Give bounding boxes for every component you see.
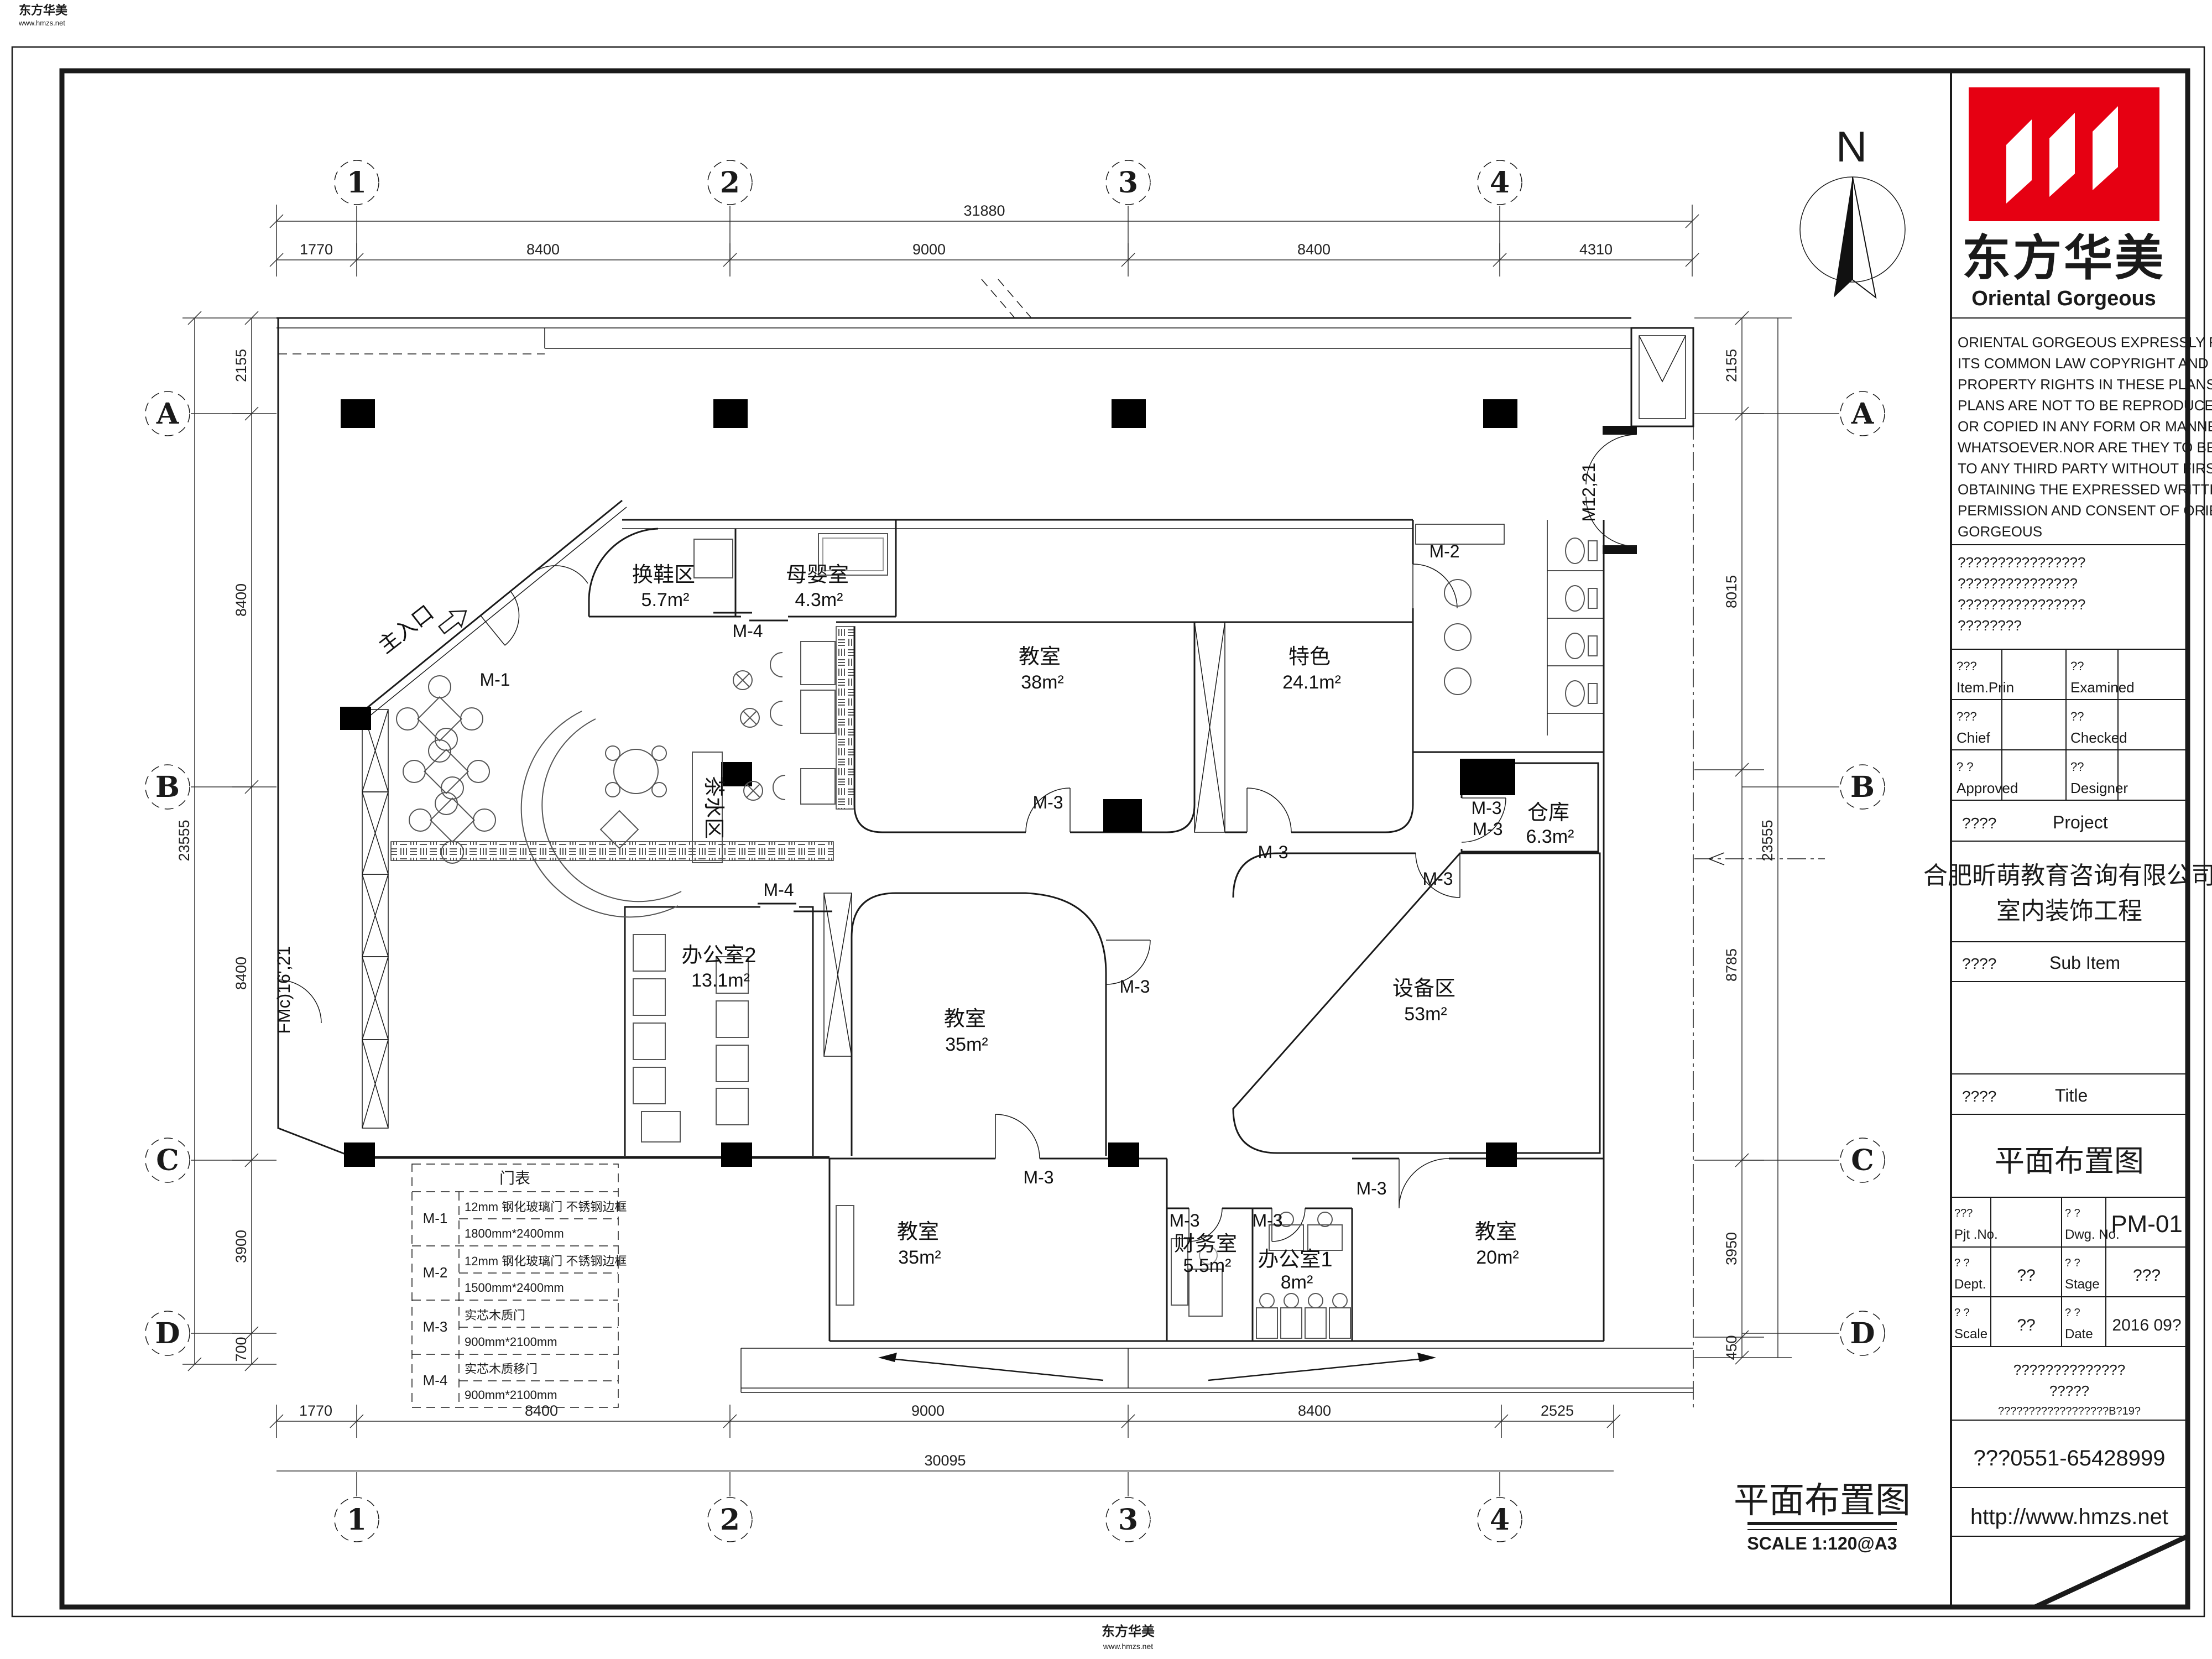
svg-text:5.5m²: 5.5m² xyxy=(1183,1255,1232,1276)
svg-text:??: ?? xyxy=(2070,659,2084,673)
svg-text:Project: Project xyxy=(2053,812,2108,832)
plan-caption-scale: SCALE 1:120@A3 xyxy=(1747,1533,1897,1553)
svg-text:??: ?? xyxy=(2070,760,2084,774)
svg-text:PLANS ARE NOT TO BE REPRODUCED: PLANS ARE NOT TO BE REPRODUCED CH xyxy=(1958,397,2212,414)
mark-m4-top: M-4 xyxy=(732,621,763,641)
svg-text:GORGEOUS: GORGEOUS xyxy=(1958,523,2042,540)
svg-text:C: C xyxy=(1851,1144,1874,1177)
svg-text:3: 3 xyxy=(1118,1503,1138,1537)
svg-text:???: ??? xyxy=(1957,659,1977,673)
svg-text:6.3m²: 6.3m² xyxy=(1526,826,1574,847)
svg-text:8400: 8400 xyxy=(1297,241,1331,258)
svg-text:TO ANY THIRD PARTY WITHOUT FIR: TO ANY THIRD PARTY WITHOUT FIRST xyxy=(1958,460,2212,477)
title-row: ???? Title 平面布置图 xyxy=(1951,1074,2188,1178)
svg-text:3950: 3950 xyxy=(1723,1232,1740,1265)
hatch-wall-vertical xyxy=(836,627,855,809)
svg-text:OR COPIED IN ANY FORM OR MANNE: OR COPIED IN ANY FORM OR MANNER xyxy=(1958,418,2212,435)
mark-m3-equipment: M-3 xyxy=(1422,869,1453,889)
svg-text:?????: ????? xyxy=(2049,1383,2089,1399)
svg-text:4.3m²: 4.3m² xyxy=(795,589,843,611)
svg-text:A: A xyxy=(1851,397,1874,431)
sheet-title-value: 平面布置图 xyxy=(1995,1145,2144,1178)
svg-text:??: ?? xyxy=(2070,709,2084,723)
watermark-bottom-url: www.hmzs.net xyxy=(1103,1642,1153,1651)
svg-text:23555: 23555 xyxy=(176,820,192,861)
mark-m4-office2: M-4 xyxy=(763,880,794,900)
svg-text:D: D xyxy=(155,1317,180,1350)
svg-text:D: D xyxy=(1850,1317,1875,1350)
svg-text:4310: 4310 xyxy=(1579,241,1613,258)
title-block: 东方华美 Oriental Gorgeous ORIENTAL GORGEOUS… xyxy=(1923,87,2212,1536)
svg-text:? ?: ? ? xyxy=(1954,1307,1970,1319)
dept-value: ?? xyxy=(2017,1266,2035,1285)
phone: ???0551-65428999 xyxy=(1973,1446,2165,1470)
grid-bubbles-left: A B C D xyxy=(145,392,252,1355)
furniture xyxy=(397,534,1597,1338)
svg-text:Examined: Examined xyxy=(2070,679,2135,696)
room-office-2: 办公室2 xyxy=(681,944,756,967)
svg-text:35m²: 35m² xyxy=(945,1034,988,1055)
svg-text:Chief: Chief xyxy=(1957,729,1990,746)
svg-text:Designer: Designer xyxy=(2070,780,2128,796)
svg-text:13.1m²: 13.1m² xyxy=(691,970,750,991)
svg-text:? ?: ? ? xyxy=(1957,760,1974,774)
svg-text:????????????????: ???????????????? xyxy=(1958,596,2085,613)
svg-text:C: C xyxy=(156,1144,179,1177)
svg-text:PROPERTY RIGHTS IN THESE PLANS: PROPERTY RIGHTS IN THESE PLANS.THES xyxy=(1958,376,2212,393)
copyright-notice: ORIENTAL GORGEOUS EXPRESSLY RESERV ITS C… xyxy=(1958,334,2212,540)
dim-chain-bottom: 1770 8400 9000 8400 2525 30095 xyxy=(270,1402,1620,1471)
mullion-wall xyxy=(362,709,388,1128)
svg-text:??????????????: ?????????????? xyxy=(2013,1361,2125,1378)
svg-text:Scale: Scale xyxy=(1954,1327,1987,1342)
room-shoe-area: 换鞋区 xyxy=(632,564,695,587)
room-special: 特色 xyxy=(1288,645,1331,669)
svg-text:????????????????: ???????????????? xyxy=(1958,554,2085,571)
logo-english: Oriental Gorgeous xyxy=(1971,287,2156,310)
svg-text:8400: 8400 xyxy=(526,241,560,258)
svg-text:9000: 9000 xyxy=(911,1402,945,1419)
svg-text:???: ??? xyxy=(1957,709,1977,723)
room-nursery: 母婴室 xyxy=(786,564,849,587)
date-value: 2016 09? xyxy=(2112,1316,2181,1334)
hatch-floor-strip xyxy=(391,842,833,860)
mark-m1: M-1 xyxy=(479,670,510,690)
company-logo: 东方华美 Oriental Gorgeous xyxy=(1962,87,2166,310)
svg-text:????: ???? xyxy=(1962,955,1996,972)
svg-text:1: 1 xyxy=(347,166,367,200)
svg-text:? ?: ? ? xyxy=(2065,1257,2080,1269)
svg-text:1: 1 xyxy=(347,1503,367,1537)
project-name-line1: 合肥昕萌教育咨询有限公司 xyxy=(1923,862,2212,889)
website: http://www.hmzs.net xyxy=(1970,1505,2168,1529)
room-classroom-20: 教室 xyxy=(1475,1220,1517,1244)
mark-m3-classroom38: M-3 xyxy=(1032,792,1063,812)
mark-m3-classroom35btm: M-3 xyxy=(1023,1167,1053,1187)
logo-chinese: 东方华美 xyxy=(1962,231,2166,285)
svg-text:? ?: ? ? xyxy=(2065,1207,2080,1219)
grid-bubbles-right: A B C D xyxy=(1742,392,1885,1355)
structural-columns xyxy=(340,399,1517,1167)
svg-text:8400: 8400 xyxy=(233,957,249,990)
plan-caption-title: 平面布置图 xyxy=(1734,1480,1911,1521)
svg-text:Approved: Approved xyxy=(1957,780,2018,796)
svg-text:8015: 8015 xyxy=(1723,575,1740,608)
watermark-bottom-brand: 东方华美 xyxy=(1102,1624,1155,1639)
svg-text:2525: 2525 xyxy=(1541,1402,1574,1419)
svg-text:900mm*2100mm: 900mm*2100mm xyxy=(465,1335,557,1349)
svg-text:20m²: 20m² xyxy=(1476,1247,1519,1268)
elevator xyxy=(1631,328,1693,426)
svg-text:Pjt .No.: Pjt .No. xyxy=(1954,1227,1998,1242)
dwg-no-value: PM-01 xyxy=(2111,1211,2183,1238)
svg-text:4: 4 xyxy=(1490,166,1510,200)
svg-text:????: ???? xyxy=(1962,815,1996,832)
room-classroom-35-mid: 教室 xyxy=(944,1008,986,1031)
svg-text:9000: 9000 xyxy=(912,241,946,258)
svg-text:???????????????: ??????????????? xyxy=(1958,575,2078,592)
room-equipment: 设备区 xyxy=(1392,977,1455,1000)
svg-text:24.1m²: 24.1m² xyxy=(1282,672,1341,693)
mark-m3-finance: M-3 xyxy=(1169,1211,1199,1230)
room-classroom-35-bottom: 教室 xyxy=(897,1220,939,1244)
svg-text:OBTAINING THE EXPRESSED WRITTE: OBTAINING THE EXPRESSED WRITTEN xyxy=(1958,481,2212,498)
svg-text:2: 2 xyxy=(720,1503,740,1537)
svg-text:WHATSOEVER.NOR ARE THEY TO BE: WHATSOEVER.NOR ARE THEY TO BE ASS xyxy=(1958,439,2212,456)
svg-text:????????: ???????? xyxy=(1958,617,2022,634)
svg-text:3900: 3900 xyxy=(233,1230,249,1263)
svg-text:12mm 钢化玻璃门 不锈钢边框: 12mm 钢化玻璃门 不锈钢边框 xyxy=(465,1254,627,1268)
sub-item-row: ???? Sub Item xyxy=(1951,953,2188,982)
stage-value: ??? xyxy=(2133,1266,2161,1285)
svg-text:1770: 1770 xyxy=(299,1402,332,1419)
room-classroom-38: 教室 xyxy=(1019,645,1061,669)
room-office-1: 办公室1 xyxy=(1258,1248,1332,1271)
grid-bubbles-bottom: 1 2 3 4 xyxy=(335,1472,1522,1542)
notice-lines: ???????????????? ??????????????? ???????… xyxy=(1958,554,2085,634)
svg-text:主入口: 主入口 xyxy=(374,601,439,658)
svg-text:M-3: M-3 xyxy=(423,1318,448,1335)
watermark-topleft-brand: 东方华美 xyxy=(19,3,68,17)
mark-m3-special: M-3 xyxy=(1258,842,1288,862)
mark-fm: FMc)16',21 xyxy=(274,946,294,1034)
svg-text:实芯木质移门: 实芯木质移门 xyxy=(465,1362,538,1376)
svg-text:2155: 2155 xyxy=(233,349,249,382)
mark-m12: M12,21 xyxy=(1579,463,1599,522)
svg-text:N: N xyxy=(1836,122,1867,171)
mark-m3-classroom35mid: M-3 xyxy=(1119,977,1150,997)
svg-text:53m²: 53m² xyxy=(1404,1004,1447,1025)
title-block-footer: ?????????????? ????? ??????????????????B… xyxy=(1951,1361,2188,1536)
plan-caption: 平面布置图 SCALE 1:120@A3 xyxy=(1734,1480,1911,1553)
svg-text:12mm 钢化玻璃门 不锈钢边框: 12mm 钢化玻璃门 不锈钢边框 xyxy=(465,1200,627,1214)
svg-text:30095: 30095 xyxy=(924,1452,966,1469)
svg-text:38m²: 38m² xyxy=(1021,672,1063,693)
mark-m3-office1: M-3 xyxy=(1252,1211,1282,1230)
info-table: ??? Pjt .No. ? ? Dwg. No. ? ? Dept. ? ? … xyxy=(1951,1197,2188,1347)
dim-chain-right: 2155 8015 8785 3950 450 23555 xyxy=(1694,311,1792,1364)
svg-text:????: ???? xyxy=(1962,1088,1996,1105)
room-storage: 仓库 xyxy=(1527,801,1569,825)
svg-text:B: B xyxy=(1850,770,1875,804)
svg-text:A: A xyxy=(156,397,179,431)
x-wall-divider-2 xyxy=(824,893,852,1056)
project-row: ???? Project 合肥昕萌教育咨询有限公司 室内装饰工程 xyxy=(1923,812,2212,942)
scale-value: ?? xyxy=(2017,1316,2035,1334)
svg-text:??????????????????B?19?: ??????????????????B?19? xyxy=(1998,1405,2141,1417)
svg-text:1800mm*2400mm: 1800mm*2400mm xyxy=(465,1227,564,1240)
svg-text:8400: 8400 xyxy=(1298,1402,1331,1419)
svg-text:???: ??? xyxy=(1954,1207,1973,1219)
svg-text:8400: 8400 xyxy=(525,1402,558,1419)
svg-text:B: B xyxy=(155,770,180,804)
svg-text:M-2: M-2 xyxy=(423,1264,448,1281)
svg-text:ORIENTAL GORGEOUS EXPRESSLY RE: ORIENTAL GORGEOUS EXPRESSLY RESERV xyxy=(1958,334,2212,351)
svg-text:5.7m²: 5.7m² xyxy=(641,589,690,611)
svg-text:8m²: 8m² xyxy=(1281,1272,1313,1293)
svg-text:Dept.: Dept. xyxy=(1954,1277,1986,1292)
svg-text:M-1: M-1 xyxy=(423,1210,448,1227)
personnel-table: ??? Item.Prin ?? Examined ??? Chief ?? C… xyxy=(1951,649,2188,800)
svg-text:Checked: Checked xyxy=(2070,729,2127,746)
north-arrow-icon: N xyxy=(1800,122,1905,298)
svg-text:Date: Date xyxy=(2065,1327,2093,1342)
svg-text:8400: 8400 xyxy=(233,583,249,617)
door-schedule-table: 门表 M-1 12mm 钢化玻璃门 不锈钢边框 1800mm*2400mm M-… xyxy=(412,1164,627,1407)
svg-text:PERMISSION AND CONSENT OF ORIE: PERMISSION AND CONSENT OF ORIENTAL xyxy=(1958,502,2212,519)
svg-text:1770: 1770 xyxy=(300,241,333,258)
svg-text:1500mm*2400mm: 1500mm*2400mm xyxy=(465,1281,564,1295)
watermark-topleft-url: www.hmzs.net xyxy=(18,19,65,27)
svg-text:2: 2 xyxy=(720,166,740,200)
mark-m3-storage: M-3 xyxy=(1471,798,1501,818)
mark-m3-storage2: M-3 xyxy=(1472,819,1503,839)
svg-text:35m²: 35m² xyxy=(898,1247,941,1268)
svg-text:M-4: M-4 xyxy=(423,1372,448,1389)
drawing-sheet: 东方华美 Oriental Gorgeous ORIENTAL GORGEOUS… xyxy=(0,0,2212,1659)
svg-text:700: 700 xyxy=(233,1337,249,1361)
svg-text:Title: Title xyxy=(2055,1086,2088,1105)
room-tea-area: 茶水区 xyxy=(702,776,725,839)
corridor-arrows xyxy=(878,1353,1436,1380)
svg-text:31880: 31880 xyxy=(963,202,1005,219)
svg-text:8785: 8785 xyxy=(1723,948,1740,982)
mark-m3-classroom20: M-3 xyxy=(1356,1178,1386,1198)
svg-text:3: 3 xyxy=(1118,166,1138,200)
svg-text:2155: 2155 xyxy=(1723,349,1740,382)
dim-chain-top: 31880 1770 8400 9000 8400 4310 xyxy=(270,202,1699,276)
project-name-line2: 室内装饰工程 xyxy=(1996,898,2142,925)
svg-text:ITS COMMON LAW COPYRIGHT AND O: ITS COMMON LAW COPYRIGHT AND OTHE xyxy=(1958,355,2212,372)
svg-text:Item.Prin: Item.Prin xyxy=(1957,679,2014,696)
room-finance: 财务室 xyxy=(1174,1233,1237,1256)
svg-text:900mm*2100mm: 900mm*2100mm xyxy=(465,1388,557,1402)
door-schedule-title: 门表 xyxy=(499,1170,530,1187)
svg-text:Stage: Stage xyxy=(2065,1277,2100,1292)
svg-text:23555: 23555 xyxy=(1759,820,1776,861)
mark-m2: M-2 xyxy=(1429,541,1459,561)
svg-text:450: 450 xyxy=(1723,1335,1740,1360)
dim-chain-left: 2155 8400 8400 3900 700 23555 xyxy=(176,311,276,1371)
svg-text:? ?: ? ? xyxy=(2065,1307,2080,1319)
main-entrance-label: 主入口 xyxy=(374,585,472,674)
svg-text:4: 4 xyxy=(1490,1503,1510,1537)
svg-text:实芯木质门: 实芯木质门 xyxy=(465,1308,525,1322)
svg-text:? ?: ? ? xyxy=(1954,1257,1970,1269)
x-wall-divider-1 xyxy=(1194,622,1225,832)
svg-text:Sub Item: Sub Item xyxy=(2049,953,2120,973)
